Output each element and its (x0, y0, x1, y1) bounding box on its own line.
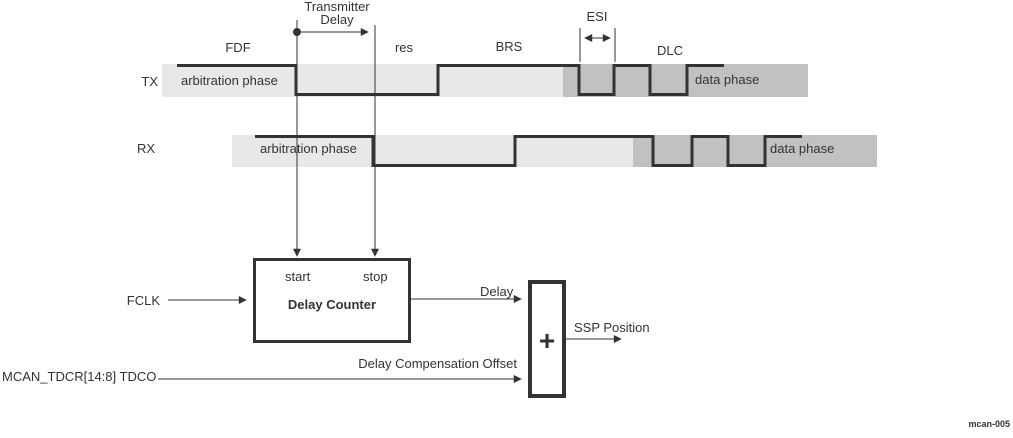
stop-label: stop (363, 270, 388, 283)
dlc-label: DLC (650, 44, 690, 57)
delay-start-dot (293, 28, 301, 36)
plus-symbol: + (532, 327, 562, 355)
delay-signal-label: Delay (480, 285, 513, 298)
transmitter-delay-label: Transmitter Delay (277, 0, 397, 26)
fclk-label: FCLK (118, 294, 160, 307)
res-label: res (384, 41, 424, 54)
rx-data-phase-label: data phase (770, 142, 834, 155)
adder-block: + (528, 280, 566, 398)
delay-compensation-offset-label: Delay Compensation Offset (347, 357, 517, 370)
tx-data-phase-label: data phase (695, 73, 759, 86)
tdco-register-label: MCAN_TDCR[14:8] TDCO (2, 370, 156, 383)
figure-id: mcan-005 (968, 419, 1010, 429)
tx-arbitration-phase-label: arbitration phase (181, 74, 278, 87)
tx-label: TX (130, 75, 158, 88)
fdf-label: FDF (218, 41, 258, 54)
start-label: start (285, 270, 310, 283)
rx-data-band (633, 135, 877, 167)
delay-counter-title: Delay Counter (256, 298, 408, 311)
brs-label: BRS (489, 40, 529, 53)
esi-label: ESI (577, 10, 617, 23)
transmitter-delay-compensation-diagram: Transmitter Delay FDF res BRS ESI DLC TX… (0, 0, 1013, 438)
rx-label: RX (127, 142, 155, 155)
delay-counter-block: start stop Delay Counter (253, 258, 411, 343)
ssp-position-label: SSP Position (574, 321, 650, 334)
rx-arbitration-phase-label: arbitration phase (260, 142, 357, 155)
